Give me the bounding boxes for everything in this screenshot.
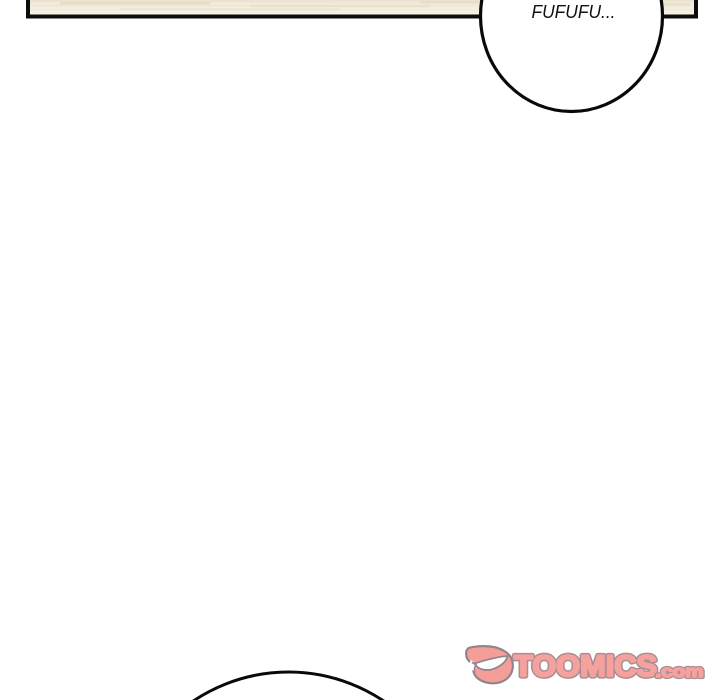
svg-text:.com: .com: [656, 662, 704, 681]
svg-text:FUFUFU...: FUFUFU...: [532, 2, 616, 22]
svg-text:TOOMICS: TOOMICS: [514, 650, 657, 683]
